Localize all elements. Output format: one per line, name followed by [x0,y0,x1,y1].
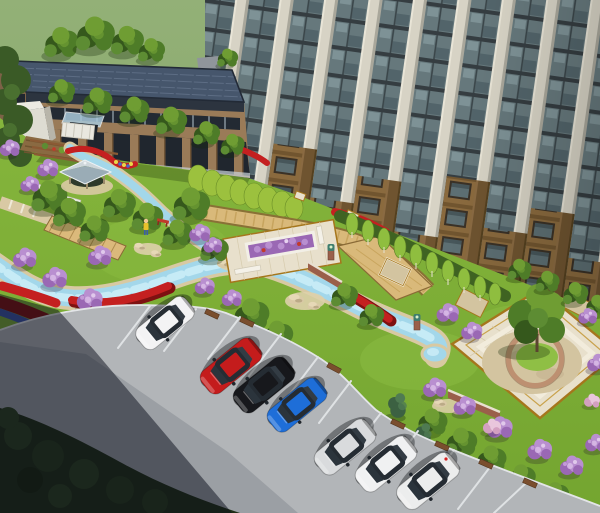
landscape-rendering [0,0,600,513]
garden-lamp [328,244,335,260]
garden-lamp [414,314,421,330]
white-arbor [61,122,94,139]
tail-light [444,457,447,460]
rendering-stage [0,0,600,513]
